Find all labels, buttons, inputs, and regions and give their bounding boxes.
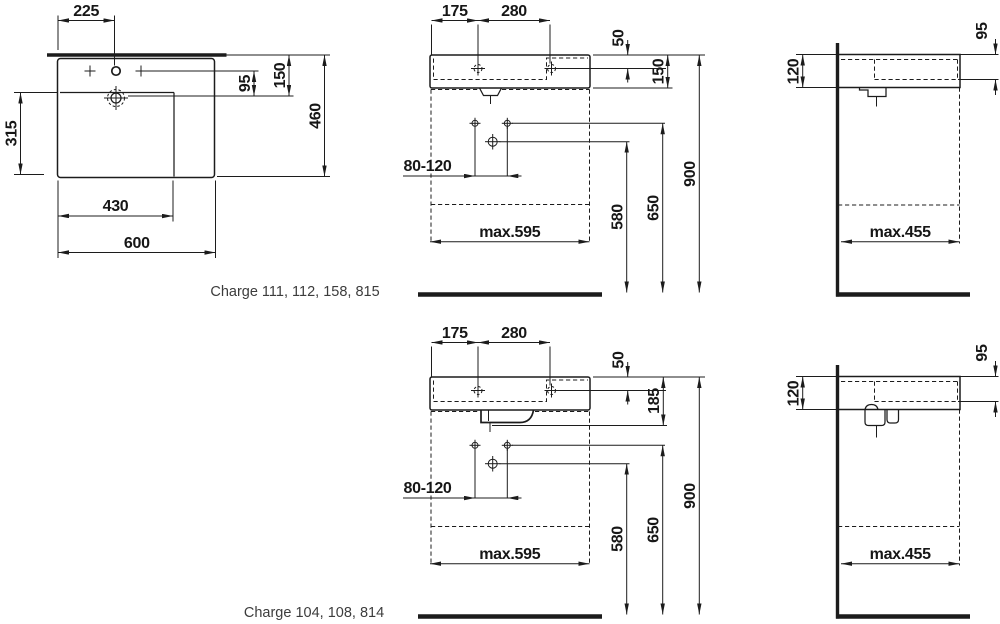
dim-label-rim-height: 900 xyxy=(682,161,699,187)
front-top-basin xyxy=(430,55,590,104)
side-bottom-clearance-box xyxy=(838,410,960,566)
plan-drain-hole xyxy=(104,86,128,110)
dim-label-drain-offset-range: 80-120 xyxy=(404,158,452,175)
dim-label-drain-offset-range: 80-120 xyxy=(404,480,452,497)
dim-label-tap-spacing: 280 xyxy=(501,3,527,20)
front-view-bottom: 175 280 50 185 80-120 xyxy=(403,325,705,617)
dim-top-to-tap: 50 xyxy=(559,351,706,404)
dim-body-height-at-wall: 120 xyxy=(786,55,837,88)
dim-label-tap-from-left: 225 xyxy=(73,3,99,20)
dim-fixing-height: 650 xyxy=(512,445,665,614)
dim-label-body-height: 185 xyxy=(646,388,663,414)
plan-tap-hole xyxy=(85,66,147,77)
dim-label-bowl-width: 430 xyxy=(103,198,129,215)
technical-drawing: 225 95 150 460 315 430 xyxy=(0,0,1000,624)
caption-group2: Charge 104, 108, 814 xyxy=(244,605,384,621)
front-view-top: 175 280 50 150 80-120 xyxy=(403,3,705,295)
dim-label-drain-outlet-height: 580 xyxy=(610,204,627,230)
dim-label-max-clearance-width: max.595 xyxy=(479,546,540,563)
dim-max-clearance-depth: max.455 xyxy=(841,224,960,242)
side-view-bottom: 120 95 max.455 xyxy=(786,344,999,619)
front-bottom-fixing-holes xyxy=(470,440,513,472)
side-view-top: 120 95 max.455 xyxy=(786,22,999,297)
dim-label-max-clearance-depth: max.455 xyxy=(870,546,931,563)
front-top-fixing-holes xyxy=(470,118,513,150)
side-top-basin xyxy=(839,55,960,107)
dim-back-to-drain: 150 xyxy=(128,55,330,96)
dim-label-body-height-at-wall: 120 xyxy=(786,380,803,406)
dim-label-left-to-tap: 175 xyxy=(442,325,468,342)
dim-rim-to-bowl: 95 xyxy=(958,344,999,417)
dim-body-height-at-wall: 120 xyxy=(786,377,837,410)
dim-body-height: 150 xyxy=(593,55,673,88)
dim-label-fixing-height: 650 xyxy=(646,195,663,221)
dim-label-max-clearance-depth: max.455 xyxy=(870,224,931,241)
dim-label-total-width: 600 xyxy=(124,235,150,252)
dim-fixing-height: 650 xyxy=(512,123,665,292)
dim-label-top-to-tap: 50 xyxy=(611,29,628,47)
dim-top-to-tap: 50 xyxy=(559,29,706,82)
dim-total-width: 600 xyxy=(58,181,216,259)
dim-bowl-depth: 315 xyxy=(4,93,58,175)
dim-drain-offset-range: 80-120 xyxy=(403,449,522,498)
dim-max-clearance-depth: max.455 xyxy=(841,546,960,564)
dim-drain-outlet-height: 580 xyxy=(500,464,630,615)
plan-basin-outline xyxy=(47,55,227,178)
drawing-sheet: 225 95 150 460 315 430 xyxy=(0,0,1000,624)
plan-view: 225 95 150 460 315 430 xyxy=(4,3,331,258)
front-bottom-basin xyxy=(430,377,590,432)
dim-label-total-depth: 460 xyxy=(308,103,325,129)
dim-label-tap-spacing: 280 xyxy=(501,325,527,342)
front-top-clearance-box xyxy=(431,90,590,244)
dim-label-tap-to-drain: 95 xyxy=(237,75,254,93)
dim-label-top-to-tap: 50 xyxy=(611,351,628,369)
caption-group1: Charge 111, 112, 158, 815 xyxy=(210,284,379,300)
dim-label-rim-height: 900 xyxy=(682,483,699,509)
side-top-clearance-box xyxy=(838,88,960,244)
dim-label-back-to-drain: 150 xyxy=(272,62,289,88)
dim-label-max-clearance-width: max.595 xyxy=(479,224,540,241)
dim-label-rim-to-bowl: 95 xyxy=(974,344,991,362)
dim-rim-height: 900 xyxy=(682,377,699,615)
dim-label-fixing-height: 650 xyxy=(646,517,663,543)
dim-label-drain-outlet-height: 580 xyxy=(610,526,627,552)
dim-label-body-height: 150 xyxy=(651,58,668,84)
dim-label-rim-to-bowl: 95 xyxy=(974,22,991,40)
dim-label-left-to-tap: 175 xyxy=(442,3,468,20)
dim-max-clearance-width: max.595 xyxy=(430,546,590,564)
dim-drain-offset-range: 80-120 xyxy=(403,127,522,176)
dim-bowl-width: 430 xyxy=(58,181,173,259)
dim-max-clearance-width: max.595 xyxy=(430,224,590,242)
side-bottom-basin xyxy=(839,377,960,438)
front-bottom-clearance-box xyxy=(431,412,590,566)
dim-rim-to-bowl: 95 xyxy=(958,22,999,95)
dim-drain-outlet-height: 580 xyxy=(500,142,630,293)
captions: Charge 111, 112, 158, 815 Charge 104, 10… xyxy=(210,284,384,621)
dim-label-bowl-depth: 315 xyxy=(4,120,21,146)
dim-rim-height: 900 xyxy=(682,55,699,293)
dim-label-body-height-at-wall: 120 xyxy=(786,58,803,84)
